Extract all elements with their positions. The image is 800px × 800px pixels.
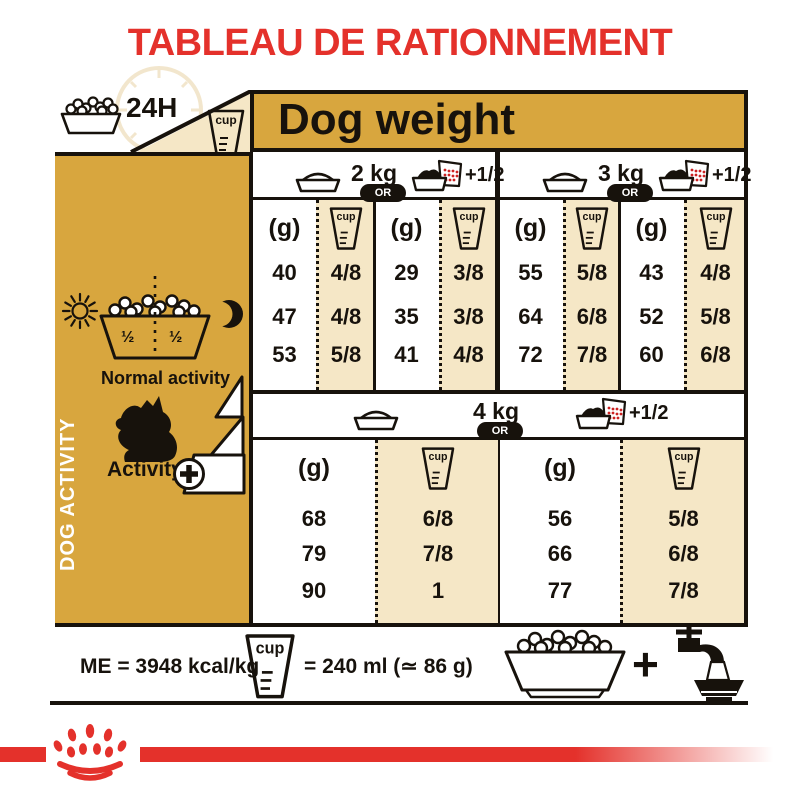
grams-value: 52 [621,302,682,332]
grams-value: 55 [500,258,561,288]
brand-stripe-right [140,747,780,762]
brand-stripe-left [0,747,46,762]
ration-table: 2 kg OR +1/2 3 kg OR +1/2 (g) 40 47 [253,152,748,627]
plus-circle-icon [171,456,207,492]
grams-value: 56 [500,504,620,534]
cups-value: 3/8 [442,258,495,288]
or-badge: OR [607,184,653,202]
half-half-bowl: ½ ½ [93,274,217,366]
kibble-bowl-icon [58,92,124,138]
grams-header: (g) [253,214,316,243]
grams-value: 64 [500,302,561,332]
food-bowl-pouch-icon [575,396,629,434]
cups-value: 1 [378,576,498,606]
cups-value: 5/8 [687,302,744,332]
svg-text:cup: cup [674,451,693,463]
cups-value: 4/8 [319,302,373,332]
cups-value: 4/8 [442,340,495,370]
cup-icon: cup [328,206,364,252]
kibble-bowl-icon [500,626,630,702]
half-right-label: ½ [169,329,182,347]
plus-sign: + [632,644,659,684]
page-title: TABLEAU DE RATIONNEMENT [0,22,800,65]
cup-icon: cup [420,446,456,492]
dog-activity-vertical-label: DOG ACTIVITY [57,364,83,624]
grams-header: (g) [253,454,375,483]
grams-value: 29 [376,258,437,288]
plus-half-label: +1/2 [629,402,668,425]
grams-header: (g) [376,214,437,243]
grams-value: 77 [500,576,620,606]
grams-value: 53 [253,340,316,370]
cups-value: 5/8 [623,504,744,534]
svg-text:cup: cup [459,211,478,223]
grams-value: 90 [253,576,375,606]
divider [50,701,748,705]
svg-text:cup: cup [429,451,448,463]
cups-column: cup 5/8 6/8 7/8 [620,440,744,623]
food-bowl-pouch-icon [411,158,465,196]
divider [495,152,500,390]
hours-label: 24H [126,92,177,124]
grams-value: 35 [376,302,437,332]
divider [618,200,621,390]
cups-value: 5/8 [319,340,373,370]
weight-3kg-label: 3 kg [598,160,644,187]
cups-column: cup 5/8 6/8 7/8 [563,200,618,390]
grams-header: (g) [500,214,561,243]
cup-icon: cup [242,632,298,702]
grams-value: 66 [500,539,620,569]
royal-canin-crown-logo [48,722,132,786]
cups-value: 7/8 [378,539,498,569]
half-left-label: ½ [121,329,134,347]
cup-equivalence-label: = 240 ml (≃ 86 g) [304,652,473,682]
empty-bowl-icon [540,164,590,194]
svg-text:cup: cup [706,211,725,223]
cups-value: 6/8 [566,302,618,332]
empty-bowl-icon [293,164,343,194]
cups-column: cup 4/8 4/8 5/8 [316,200,373,390]
cups-value: 7/8 [623,576,744,606]
grams-column: (g) 55 64 72 [500,200,561,390]
grams-value: 43 [621,258,682,288]
empty-bowl-icon [351,402,401,432]
feeding-guide-page: TABLEAU DE RATIONNEMENT 24H cup Dog weig… [0,0,800,800]
cup-icon: cup [451,206,487,252]
or-badge: OR [477,422,523,440]
divider [253,390,744,394]
svg-text:cup: cup [583,211,602,223]
dog-activity-sidebar: ½ ½ DOG ACTIVITY Normal activity Activit… [55,152,253,627]
cups-value: 5/8 [566,258,618,288]
cup-icon: cup [698,206,734,252]
grams-column: (g) 56 66 77 [500,440,620,623]
cups-value: 3/8 [442,302,495,332]
cups-value: 6/8 [623,539,744,569]
svg-text:cup: cup [337,211,356,223]
cups-value: 7/8 [566,340,618,370]
cups-value: 6/8 [378,504,498,534]
weight-2kg-label: 2 kg [351,160,397,187]
cups-column: cup 4/8 5/8 6/8 [684,200,744,390]
cups-column: cup 3/8 3/8 4/8 [439,200,495,390]
weight-4kg-label: 4 kg [473,398,519,425]
plus-half-label: +1/2 [712,164,751,187]
cups-value: 6/8 [687,340,744,370]
faucet-water-bowl-icon [658,624,766,704]
grams-column: (g) 68 79 90 [253,440,375,623]
dog-weight-header: Dog weight [250,90,748,152]
grams-value: 72 [500,340,561,370]
cup-icon: cup [574,206,610,252]
moon-icon [213,296,245,332]
grams-column: (g) 43 52 60 [621,200,682,390]
svg-text:cup: cup [215,113,236,127]
cups-column: cup 6/8 7/8 1 [375,440,498,623]
grams-value: 40 [253,258,316,288]
divider [373,200,376,390]
grams-value: 60 [621,340,682,370]
cups-value: 4/8 [319,258,373,288]
grams-header: (g) [500,454,620,483]
food-bowl-pouch-icon [658,158,712,196]
grams-header: (g) [621,214,682,243]
cups-value: 4/8 [687,258,744,288]
metabolizable-energy-label: ME = 3948 kcal/kg [80,652,259,682]
cup-icon: cup [666,446,702,492]
svg-text:cup: cup [256,640,285,658]
grams-value: 47 [253,302,316,332]
grams-value: 68 [253,504,375,534]
or-badge: OR [360,184,406,202]
grams-column: (g) 40 47 53 [253,200,316,390]
normal-activity-label: Normal activity [101,368,230,389]
grams-value: 41 [376,340,437,370]
grams-column: (g) 29 35 41 [376,200,437,390]
grams-value: 79 [253,539,375,569]
